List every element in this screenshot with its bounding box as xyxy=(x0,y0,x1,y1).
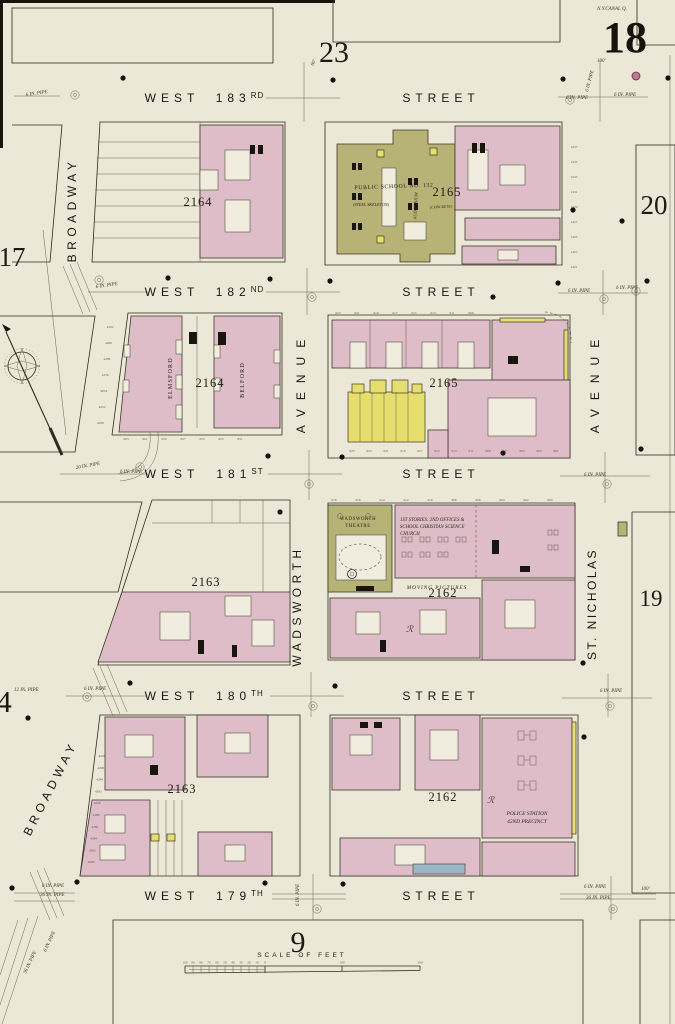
block-number-2162-mid: 2162 xyxy=(429,586,458,600)
utility-box xyxy=(618,522,627,536)
scale-tick-label: 90 xyxy=(191,961,195,965)
house-number: 655 xyxy=(199,437,204,441)
scale-tick-label: 50 xyxy=(223,961,227,965)
house-number: 1433 xyxy=(571,175,578,179)
pipe-label: 36 IN. PIPE xyxy=(586,896,611,901)
house-number: 653 xyxy=(218,437,223,441)
scale-tick-label: 100 xyxy=(182,961,187,965)
adjacent-plate-19: 19 xyxy=(640,586,663,611)
pipe-label: 6 IN. PIPE xyxy=(584,473,606,478)
scale-tick-label: 100 xyxy=(339,961,344,965)
pipe-label: 6 IN. PIPE xyxy=(296,884,301,906)
offices-label-2: SCHOOL CHRISTIAN SCIENCE xyxy=(400,525,464,530)
street-west: WEST xyxy=(145,91,200,105)
scale-tick-label: 30 xyxy=(239,961,243,965)
house-number: 4294 xyxy=(96,778,103,782)
scale-tick-label: 10 xyxy=(255,961,259,965)
house-number: 611 xyxy=(469,449,474,453)
stable-mark: ℛ xyxy=(406,624,414,634)
hydrant-dot xyxy=(165,275,170,280)
house-number: 607 xyxy=(502,449,507,453)
theatre-label-1: WADSWORTH xyxy=(340,517,376,522)
house-number: 4280 xyxy=(88,860,95,864)
house-number: 1423 xyxy=(571,250,578,254)
plate-number: 18 xyxy=(603,13,647,62)
hydrant-dot xyxy=(74,879,79,884)
hydrant-dot xyxy=(277,509,282,514)
pipe-label: 6 IN. PIPE xyxy=(616,286,638,291)
house-number: 613 xyxy=(451,449,456,453)
house-number: 4286 xyxy=(91,825,98,829)
block-number-2165-upper: 2165 xyxy=(433,185,462,199)
house-number: 1435 xyxy=(571,160,578,164)
house-number: 1431 xyxy=(571,190,578,194)
hydrant-dot xyxy=(581,734,586,739)
wadsworth-label: WADSWORTH xyxy=(290,545,304,666)
scale-tick-label: 40 xyxy=(231,961,235,965)
hydrant-dot xyxy=(619,218,624,223)
pipe-label: 100' xyxy=(641,887,651,892)
house-number: 4262 xyxy=(107,325,114,329)
street-west: WEST xyxy=(145,689,200,703)
adjacent-plate-4: 4 xyxy=(0,684,12,719)
house-number: 610 xyxy=(427,498,432,502)
house-number: 1425 xyxy=(571,235,578,239)
street-name: STREET xyxy=(402,285,479,299)
stable-mark: ℛ xyxy=(487,795,495,805)
hydrant-dot xyxy=(120,75,125,80)
block-number-2165-mid: 2165 xyxy=(430,376,459,390)
house-number: 602 xyxy=(523,498,528,502)
adjacent-plate-20: 20 xyxy=(641,190,668,220)
hydrant-dot xyxy=(665,75,670,80)
hydrant-dot xyxy=(9,885,14,890)
house-number: 651 xyxy=(237,437,242,441)
corner-note: N.Y.CANAL Q. xyxy=(596,7,627,12)
house-number: 619 xyxy=(400,449,405,453)
pipe-label: 6 IN. PIPE xyxy=(120,470,142,475)
hydrant-dot xyxy=(560,76,565,81)
hydrant-dot xyxy=(490,294,495,299)
house-number: 4252 xyxy=(99,405,106,409)
street-west: WEST xyxy=(145,467,200,481)
hydrant-dot xyxy=(638,446,643,451)
police-station-label-1: POLICE STATION xyxy=(506,811,548,817)
street-name: STREET xyxy=(402,467,479,481)
house-number: 1437 xyxy=(571,145,578,149)
house-number: 663 xyxy=(123,437,128,441)
house-number: 611 xyxy=(450,311,455,315)
house-number: 621 xyxy=(354,311,359,315)
house-number: 4260 xyxy=(105,341,112,345)
house-number: 609 xyxy=(485,449,490,453)
pipe-label: 6 IN. PIPE xyxy=(566,96,588,101)
pipe-label: 6 IN. PIPE xyxy=(568,289,590,294)
hydrant-dot xyxy=(644,278,649,283)
house-number: 623 xyxy=(335,311,340,315)
house-number: 616 xyxy=(355,498,360,502)
house-number: 601 xyxy=(553,449,558,453)
house-number: 604 xyxy=(499,498,504,502)
scale-tick-label: 70 xyxy=(207,961,211,965)
house-number: 4256 xyxy=(102,373,109,377)
house-number: 4258 xyxy=(103,357,110,361)
block-number-2163-mid: 2163 xyxy=(192,575,221,589)
house-number: 615 xyxy=(434,449,439,453)
scale-tick-label: 60 xyxy=(215,961,219,965)
block-number-2164-mid: 2164 xyxy=(196,376,225,390)
house-number: 1429 xyxy=(571,205,578,209)
house-number: 619 xyxy=(373,311,378,315)
block-2164-upper-buildings xyxy=(200,125,283,258)
map-canvas: PUBLIC SCHOOL NO. 132 (STEEL SKELETON) A… xyxy=(0,0,675,1024)
block-2163-mid-buildings xyxy=(98,592,290,662)
offices-label-3: CHURCH xyxy=(400,532,420,537)
house-number: 4290 xyxy=(94,801,101,805)
house-number: 4288 xyxy=(93,813,100,817)
house-number: 618 xyxy=(331,498,336,502)
pink-marker xyxy=(632,72,640,80)
house-number: 4282 xyxy=(89,848,96,852)
block-number-2162-lower: 2162 xyxy=(429,790,458,804)
house-number: 617 xyxy=(417,449,422,453)
house-number: 609 xyxy=(468,311,473,315)
hydrant-dot xyxy=(580,660,585,665)
adjacent-plate-23: 23 xyxy=(319,36,349,69)
pipe-label: 6 IN. PIPE xyxy=(584,885,606,890)
house-number: 1427 xyxy=(571,220,578,224)
hydrant-dot xyxy=(330,77,335,82)
hydrant-dot xyxy=(262,880,267,885)
street-west: WEST xyxy=(145,889,200,903)
house-number: 621 xyxy=(383,449,388,453)
pipe-label: 6 IN. PIPE xyxy=(614,93,636,98)
st-nicholas-label: ST. NICHOLAS xyxy=(585,548,599,660)
pipe-label: 100' xyxy=(597,59,607,64)
theatre-label-2: THEATRE xyxy=(345,524,371,529)
public-school-sub-label: (STEEL SKELETON) xyxy=(353,202,390,207)
house-number: 614 xyxy=(379,498,384,502)
street-west: WEST xyxy=(145,285,200,299)
house-number: 612 xyxy=(403,498,408,502)
belford-label: BELFORD xyxy=(240,362,246,398)
house-number: 4292 xyxy=(95,789,102,793)
street-name: STREET xyxy=(402,91,479,105)
pipe-label: 6 IN. PIPE xyxy=(600,689,622,694)
house-number: 623 xyxy=(366,449,371,453)
scale-tick-label: 80 xyxy=(199,961,203,965)
house-number: 4250 xyxy=(97,421,104,425)
pipe-label: 6 IN. PIPE xyxy=(84,687,106,692)
house-number: 4254 xyxy=(100,389,107,393)
hydrant-dot xyxy=(555,280,560,285)
pipe-label: 36 IN. PIPE xyxy=(40,893,65,898)
pipe-label: 12 IN. PIPE xyxy=(14,688,39,693)
scale-tick-label: 20 xyxy=(247,961,251,965)
elmsford-label: ELMSFORD xyxy=(168,357,174,399)
hydrant-dot xyxy=(265,453,270,458)
house-number: 625 xyxy=(349,449,354,453)
broadway-upper-label: BROADWAY xyxy=(65,158,79,263)
scale-tick-label: 0 xyxy=(264,961,266,965)
house-number: 600 xyxy=(547,498,552,502)
hydrant-dot xyxy=(340,881,345,886)
hydrant-dot xyxy=(339,454,344,459)
house-number: 4298 xyxy=(99,754,106,758)
house-number: 4284 xyxy=(90,837,97,841)
hydrant-dot xyxy=(25,715,30,720)
hydrant-dot xyxy=(267,276,272,281)
sanborn-map-plate: PUBLIC SCHOOL NO. 132 (STEEL SKELETON) A… xyxy=(0,0,675,1024)
house-number: 608 xyxy=(451,498,456,502)
street-name: STREET xyxy=(402,689,479,703)
hydrant-dot xyxy=(127,680,132,685)
block-number-2164-upper: 2164 xyxy=(184,195,213,209)
scale-title: SCALE OF FEET xyxy=(257,952,347,959)
st-nicholas-avenue-word: AVENUE xyxy=(588,331,602,433)
house-number: 603 xyxy=(536,449,541,453)
house-number: 659 xyxy=(161,437,166,441)
street-name: STREET xyxy=(402,889,479,903)
police-station-label-2: 42ND PRECINCT xyxy=(507,819,548,825)
hydrant-dot xyxy=(332,683,337,688)
adjacent-plate-17: 17 xyxy=(0,242,26,272)
house-number: 605 xyxy=(519,449,524,453)
house-number: 617 xyxy=(392,311,397,315)
hydrant-dot xyxy=(327,278,332,283)
offices-label-1: 1ST STORIES: 2ND OFFICES & xyxy=(400,518,465,523)
block-number-2163-lower: 2163 xyxy=(168,782,197,796)
house-number: 657 xyxy=(180,437,185,441)
house-number: 4296 xyxy=(97,766,104,770)
wadsworth-avenue-word: AVENUE xyxy=(294,331,308,433)
house-number: 661 xyxy=(142,437,147,441)
house-number: 615 xyxy=(411,311,416,315)
house-number: 606 xyxy=(475,498,480,502)
house-number: 613 xyxy=(430,311,435,315)
pipe-label: 6 IN. PIPE xyxy=(42,884,64,889)
scale-tick-label: 200 xyxy=(417,961,422,965)
house-number: 1421 xyxy=(571,265,578,269)
